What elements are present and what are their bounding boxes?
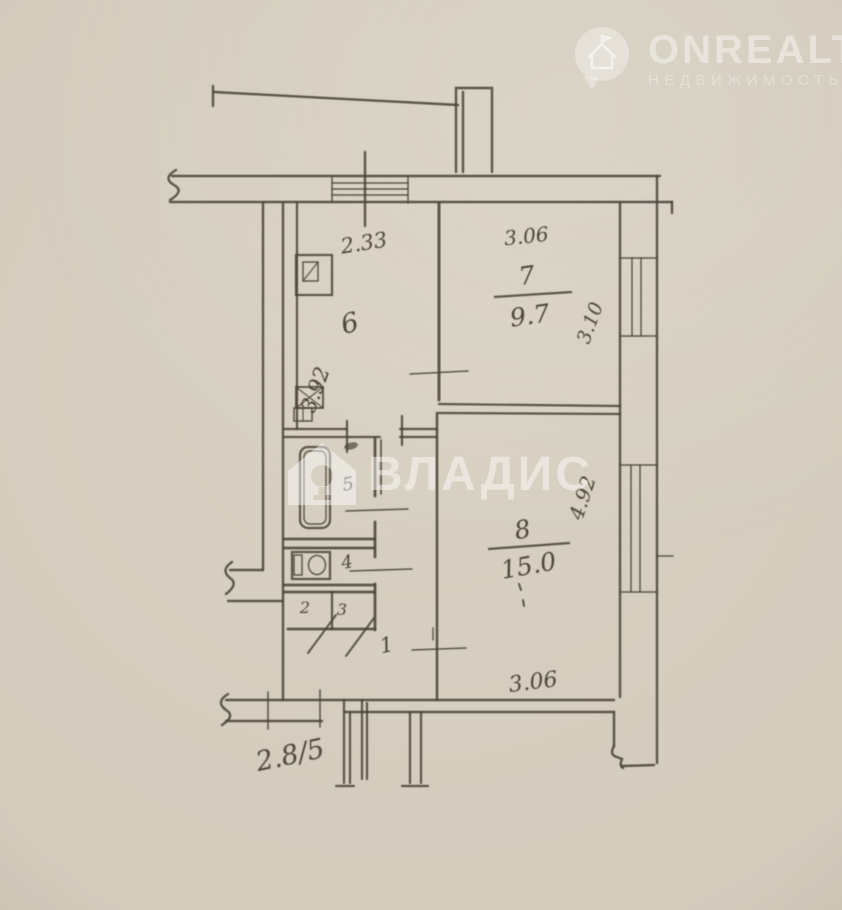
scanned-floor-plan-page: 2.33 6 3.92 3.06 7 9.7 3.10 8 15.0 4.92 …	[0, 0, 842, 910]
room7-number-label: 7	[517, 260, 537, 291]
left-wall	[225, 203, 283, 700]
top-wall	[168, 152, 672, 226]
room7-area-label: 9.7	[508, 298, 552, 332]
balcony-outline	[213, 86, 492, 172]
right-wall	[612, 176, 657, 768]
room7-fraction-bar	[494, 292, 572, 297]
room8-width-dim: 3.06	[507, 667, 559, 698]
closet-a-number-label: 2	[299, 598, 310, 617]
toilet-icon	[292, 552, 330, 579]
room7-depth-dim: 3.10	[573, 299, 608, 346]
room8-depth-dim: 4.92	[564, 473, 601, 524]
hall-room8-wall	[412, 413, 466, 700]
room7-width-dim: 3.06	[503, 222, 550, 251]
toilet-number-label: 4	[339, 551, 355, 574]
kitchen-width-dim: 2.33	[338, 228, 389, 259]
kitchen-window	[332, 176, 408, 203]
room8-window	[620, 465, 673, 592]
kitchen-depth-dim: 3.92	[296, 364, 335, 416]
bottom-wall	[221, 694, 614, 725]
vent-shaft-icon	[296, 255, 332, 295]
door-hinge-mark	[343, 441, 358, 451]
kitchen-room7-wall	[410, 203, 468, 400]
pencil-marks	[519, 584, 524, 606]
entry-dimension-label: 2.8/5	[252, 733, 327, 778]
closet-b-number-label: 3	[337, 600, 347, 619]
bathtub-icon	[300, 447, 330, 528]
room8-area-label: 15.0	[499, 547, 559, 585]
room7-window	[620, 258, 657, 336]
hallway-number-label: 1	[378, 632, 396, 658]
entry-dimension-ticks	[268, 690, 320, 729]
room7-room8-wall	[439, 404, 620, 414]
bath-block-walls	[284, 438, 381, 630]
room8-number-label: 8	[512, 514, 533, 545]
bathroom-number-label: 5	[341, 473, 356, 496]
closet-door-leaves	[308, 615, 374, 656]
kitchen-number-label: 6	[337, 307, 362, 341]
room8-fraction-bar	[488, 543, 570, 549]
floor-plan-drawing: 2.33 6 3.92 3.06 7 9.7 3.10 8 15.0 4.92 …	[0, 0, 842, 910]
